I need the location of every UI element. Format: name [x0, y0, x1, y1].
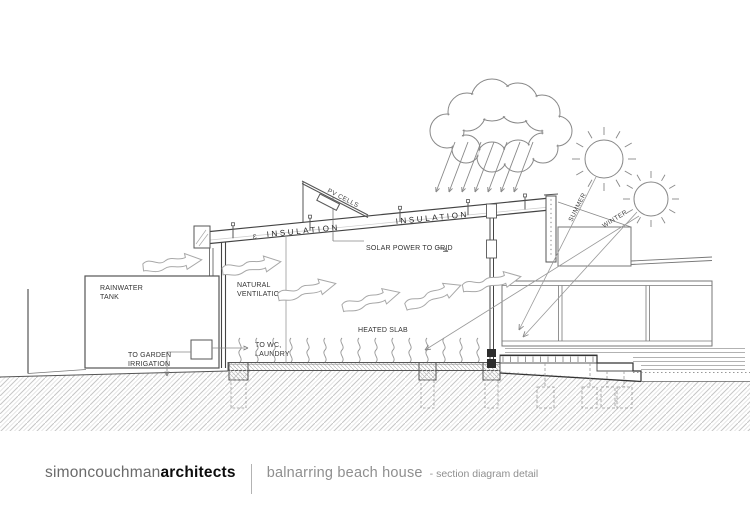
to-wc-label-1: TO WC,: [255, 342, 281, 349]
pump-box: [191, 340, 212, 359]
solar-power-leader: SOLAR POWER TO GRID: [333, 241, 453, 252]
airflow-arrow: [221, 254, 282, 278]
airflow-arrow: [340, 285, 401, 315]
rainwater-tank-label-1: RAINWATER: [100, 285, 143, 292]
title-divider: [251, 464, 252, 494]
insulation-symbol: Ɛ: [253, 234, 258, 241]
to-wc-label-2: LAUNDRY: [255, 351, 290, 358]
project-title: balnarring beach house: [267, 465, 423, 481]
firm-name-bold: architects: [160, 464, 235, 481]
project-subtitle: - section diagram detail: [430, 468, 539, 480]
to-garden-label-1: TO GARDEN: [128, 352, 171, 359]
heated-slab-label: HEATED SLAB: [358, 327, 408, 334]
summer-label: SUMMER: [568, 192, 588, 223]
airflow-arrow: [142, 252, 202, 274]
section-drawing: Ɛ INSULATION INSULATION PV CELLS SOLAR P…: [0, 0, 750, 530]
airflow-arrow: [276, 276, 337, 304]
firm-name: simoncouchman: [45, 464, 160, 481]
solar-power-label: SOLAR POWER TO GRID: [366, 245, 453, 252]
to-garden-label-2: IRRIGATION: [128, 361, 170, 368]
window-band: [502, 281, 712, 346]
rainwater-tank-label-2: TANK: [100, 294, 119, 301]
roof-fascia-beam: [546, 196, 556, 262]
summer-sun-icon: [572, 127, 636, 191]
eave-gutter-box: [194, 226, 210, 248]
title-block: simoncouchmanarchitects balnarring beach…: [45, 464, 538, 494]
drawing-sheet: Ɛ INSULATION INSULATION PV CELLS SOLAR P…: [0, 0, 750, 530]
airflow-arrow: [403, 278, 464, 313]
ground-hatch: [0, 371, 750, 431]
natural-ventilation-label-1: NATURAL: [237, 282, 271, 289]
